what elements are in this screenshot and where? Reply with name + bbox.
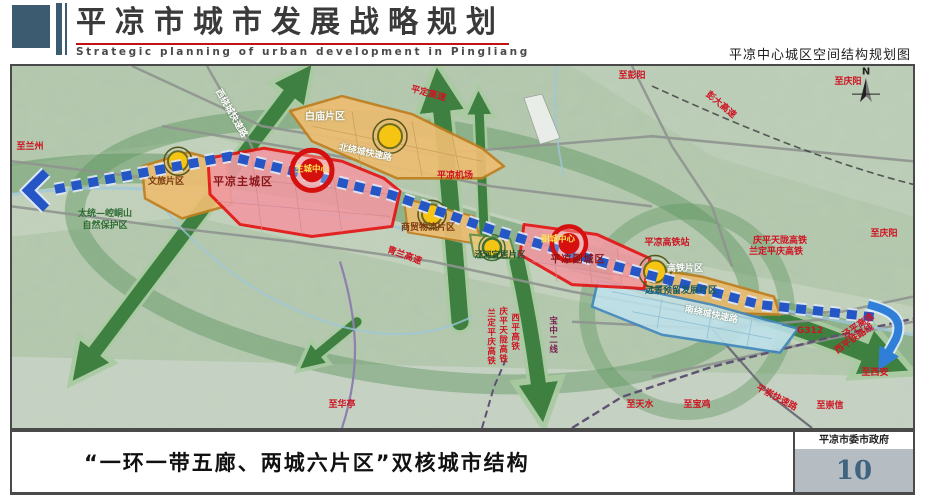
label-pingding-expressway: 平定高速 <box>409 86 446 105</box>
header: 平凉市城市发展战略规划 Strategic planning of urban … <box>0 0 925 64</box>
label-jinghe-livable-district: 泾河宜居片区 <box>474 251 525 260</box>
label-to-huating: 至华亭 <box>328 401 355 411</box>
caption: “一环一带五廊、两城六片区”双核城市结构 <box>84 447 530 477</box>
label-south-ring-expressway: 南绕城快速路 <box>684 306 739 327</box>
label-nature-reserve-line2: 自然保护区 <box>82 222 127 232</box>
slide-page: 平凉市城市发展战略规划 Strategic planning of urban … <box>0 0 925 500</box>
label-sub-city-center: 副城中心 <box>541 235 575 244</box>
label-v-qingping-tianlong-hsr: 庆平天陇高铁 <box>497 307 506 364</box>
label-sub-city: 平凉副城区 <box>551 255 606 266</box>
label-pengda-expressway: 彭大高速 <box>703 91 737 122</box>
label-to-pengyang: 至彭阳 <box>618 72 645 82</box>
label-to-chongxin: 至崇信 <box>816 402 843 412</box>
label-to-xian: 至西安 <box>861 369 888 379</box>
label-landing-pingqing-hsr: 兰定平庆高铁 <box>749 248 803 258</box>
label-to-qingyang-top: 至庆阳 <box>834 78 861 88</box>
map-subtitle: 平凉中心城区空间结构规划图 <box>729 44 911 63</box>
label-qingping-tianlong-hsr: 庆平天陇高铁 <box>753 237 807 247</box>
label-to-lanzhou: 至兰州 <box>16 143 43 153</box>
label-main-city: 平凉主城区 <box>213 176 273 188</box>
label-hsr-district: 高铁片区 <box>667 265 703 275</box>
planning-map: 至兰州 西绕城快速路 白庙片区 平定高速 至彭阳 彭大高速 至庆阳 北绕城快速路… <box>10 64 915 430</box>
label-v-baozhong-line: 宝中二线 <box>547 316 556 354</box>
label-reserved-district: 远景预留发展片区 <box>645 287 717 297</box>
label-g312: G312 <box>797 327 823 337</box>
label-west-ring-expressway: 西绕城快速路 <box>212 88 248 140</box>
government-label: 平凉市委市政府 <box>795 432 913 449</box>
label-hsr-station: 平凉高铁站 <box>644 239 689 249</box>
header-logo-square <box>12 5 50 48</box>
page-subtitle-en: Strategic planning of urban development … <box>76 46 530 58</box>
label-baimiao-district: 白庙片区 <box>305 112 345 123</box>
header-accent-bar <box>56 3 62 55</box>
label-nature-reserve-line1: 太统—崆峒山 <box>78 210 132 220</box>
header-accent-bar-thin <box>65 3 67 55</box>
map-labels: 至兰州 西绕城快速路 白庙片区 平定高速 至彭阳 彭大高速 至庆阳 北绕城快速路… <box>12 66 913 428</box>
label-pingchong-expressway: 平崇快速路 <box>754 384 798 414</box>
label-main-city-center: 主城中心 <box>295 165 329 174</box>
label-v-landing-pingqing-hsr: 兰定平庆高铁 <box>485 309 494 366</box>
label-v-xiping-hsr: 西平高铁 <box>509 313 518 351</box>
label-north-ring-expressway: 北绕城快速路 <box>338 144 393 165</box>
page-number-box: 平凉市委市政府 10 <box>793 432 913 492</box>
label-wenlv-district: 文旅片区 <box>148 178 184 188</box>
label-to-qingyang-right: 至庆阳 <box>870 230 897 240</box>
label-airport: 平凉机场 <box>437 172 473 182</box>
label-compass-north: N <box>862 67 870 78</box>
label-trade-logistics-district: 商贸物流片区 <box>401 224 455 234</box>
page-title: 平凉市城市发展战略规划 <box>76 4 509 45</box>
footer: “一环一带五廊、两城六片区”双核城市结构 平凉市委市政府 10 <box>10 430 915 495</box>
label-to-tianshui: 至天水 <box>626 401 653 411</box>
page-number: 10 <box>795 449 913 492</box>
label-to-baoji: 至宝鸡 <box>683 401 710 411</box>
label-qinglan-expressway: 青兰高速 <box>385 246 422 268</box>
